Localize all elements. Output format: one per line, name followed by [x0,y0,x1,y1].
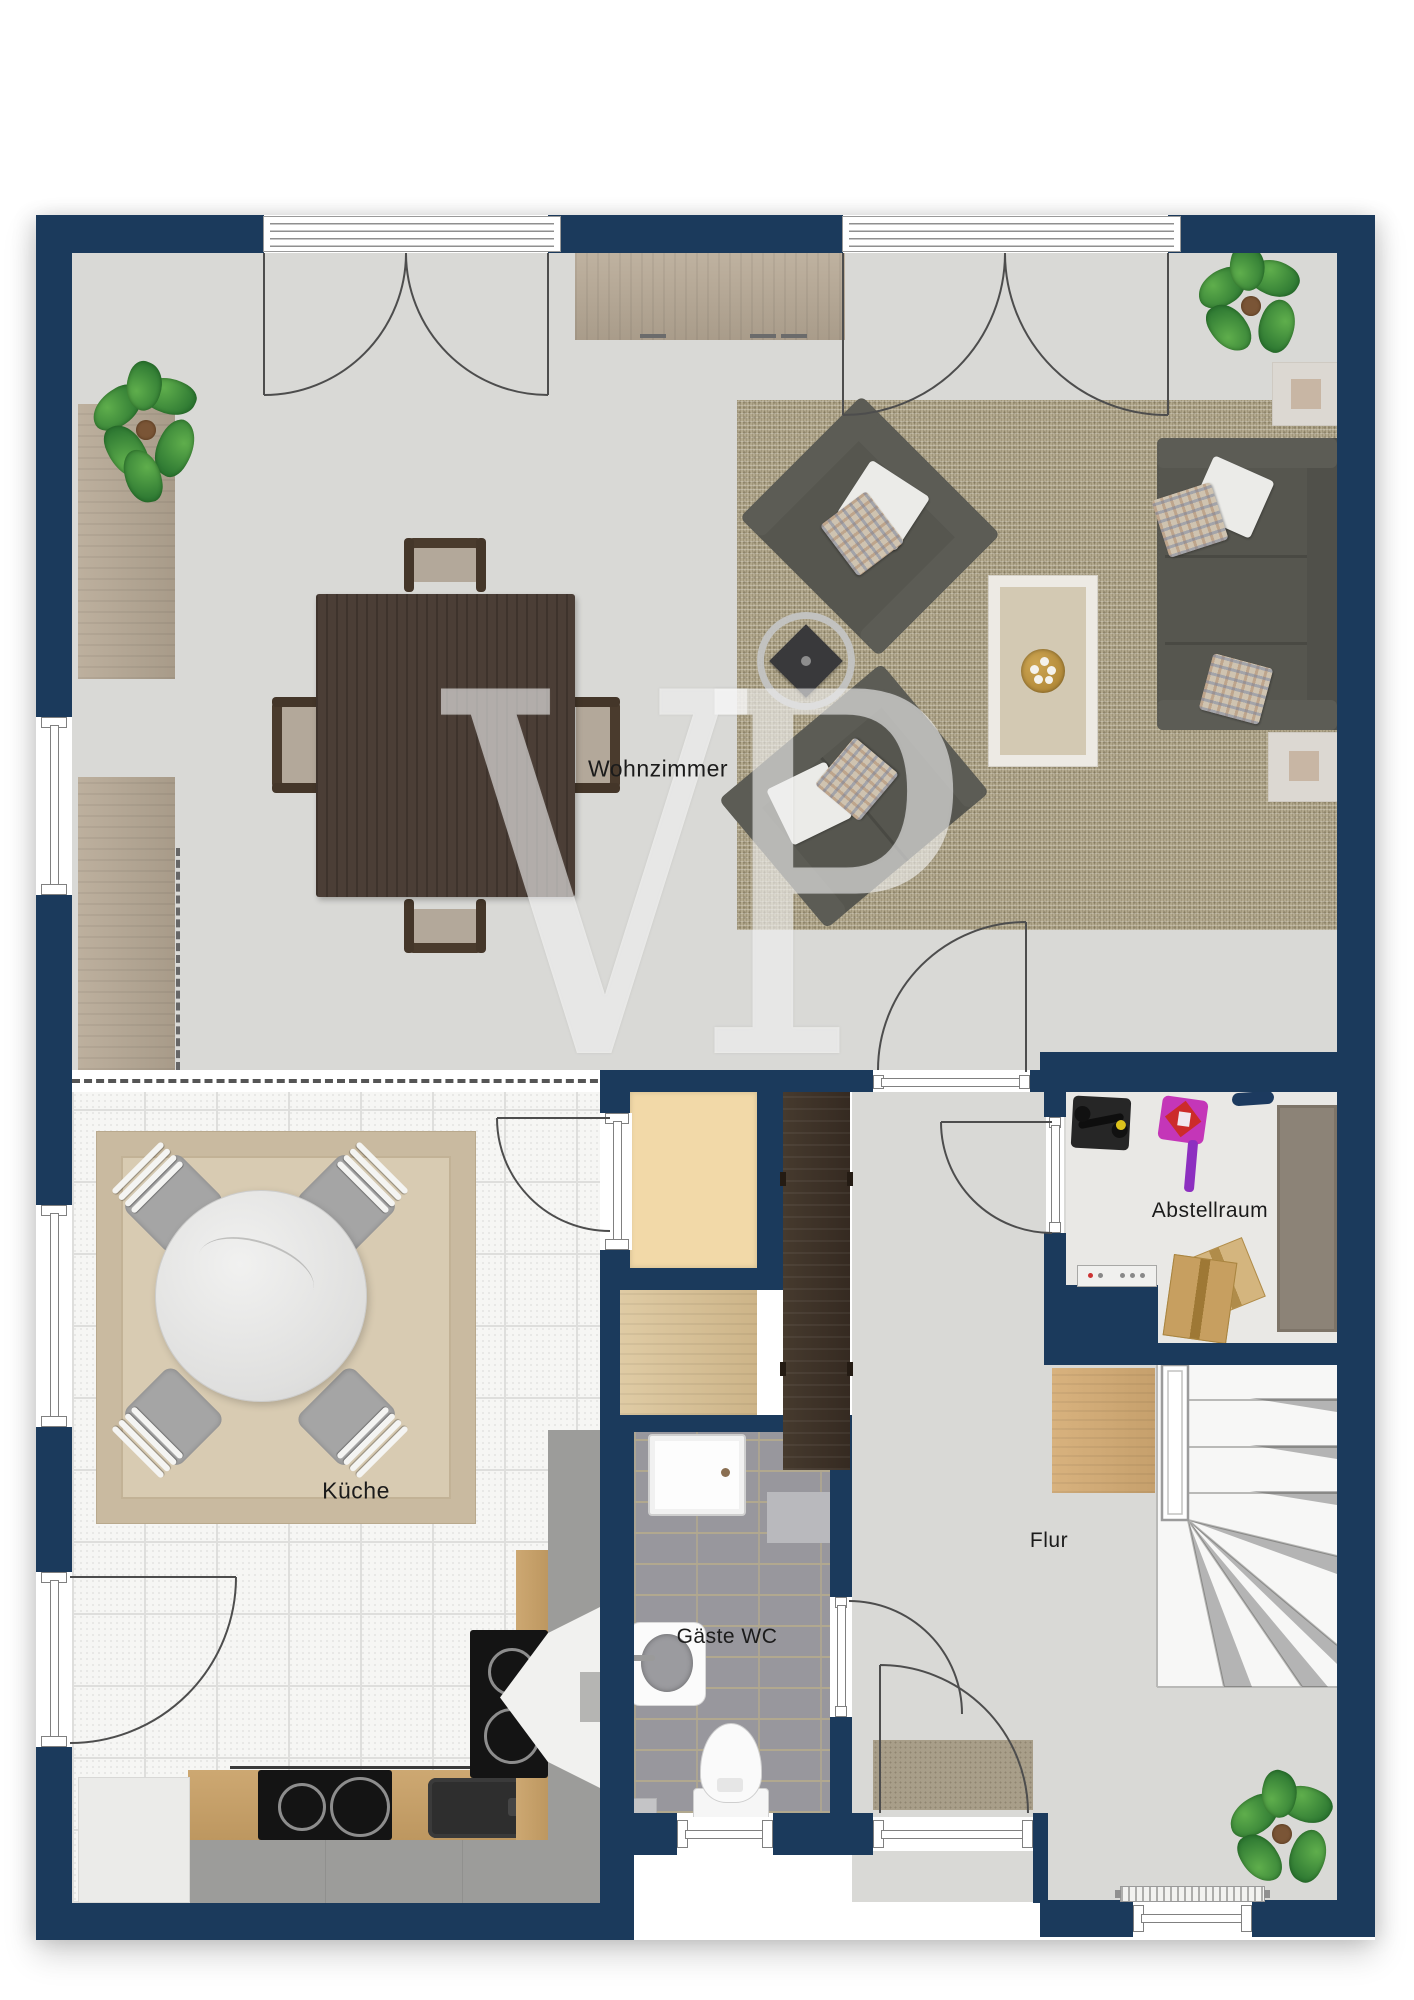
label-abstellraum: Abstellraum [1152,1199,1268,1223]
label-gaeste-wc: Gäste WC [677,1625,778,1649]
label-flur: Flur [1030,1529,1068,1553]
door-swing-arcs [0,0,1414,2000]
label-wohnzimmer: Wohnzimmer [588,756,728,783]
label-kueche: Küche [322,1478,390,1505]
floor-plan: Wohnzimmer Küche Gäste WC Flur Abstellra… [0,0,1414,2000]
